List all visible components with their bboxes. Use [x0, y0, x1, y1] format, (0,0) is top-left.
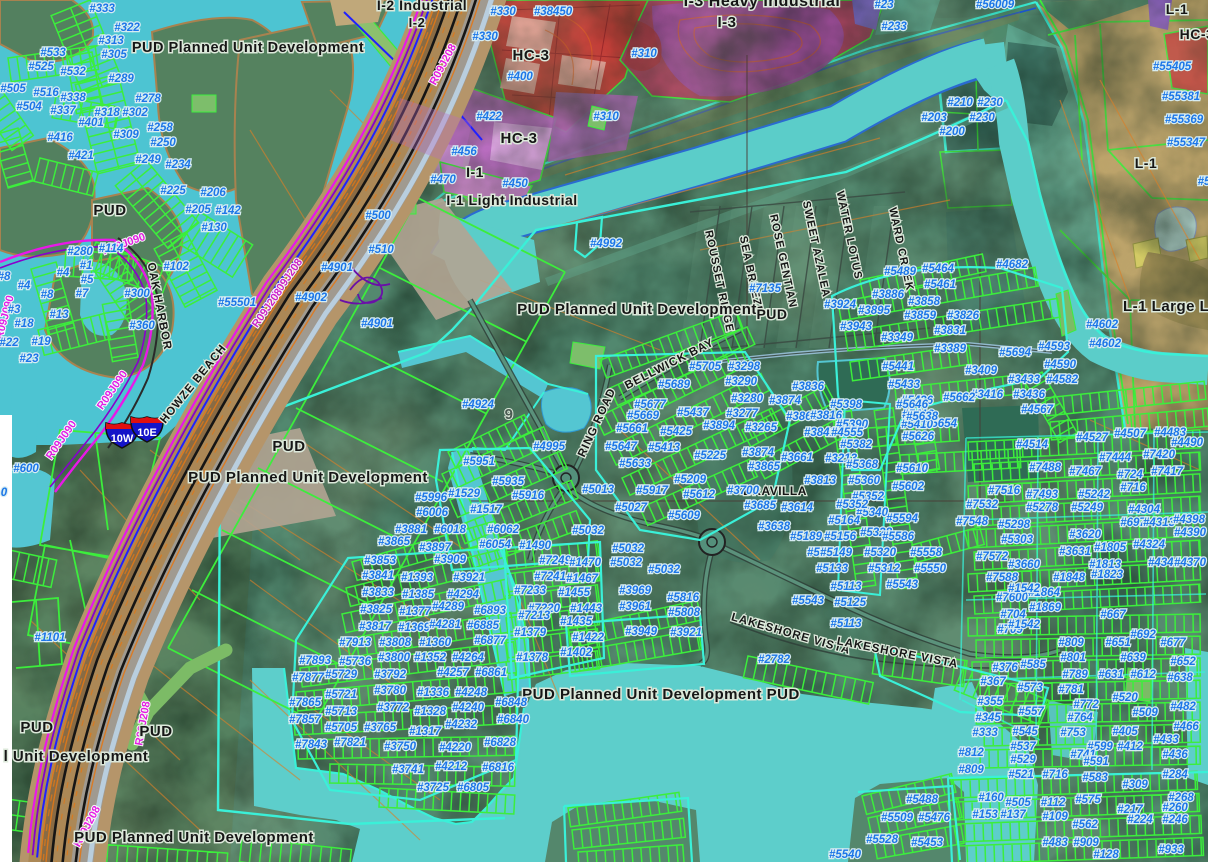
svg-text:#5633: #5633 [619, 458, 652, 470]
svg-text:PUD Planned Unit Development: PUD Planned Unit Development [74, 829, 314, 846]
svg-text:#5453: #5453 [911, 837, 944, 849]
svg-text:#309: #309 [113, 129, 139, 141]
svg-text:#509: #509 [1132, 707, 1158, 719]
svg-text:#3836: #3836 [792, 381, 825, 393]
svg-text:#112: #112 [1041, 797, 1066, 809]
svg-text:#5113: #5113 [830, 618, 862, 630]
svg-text:#631: #631 [1098, 669, 1124, 681]
svg-text:10W: 10W [111, 433, 134, 445]
svg-text:#3685: #3685 [744, 500, 777, 512]
svg-text:#7893: #7893 [299, 655, 332, 667]
svg-text:#6816: #6816 [482, 762, 515, 774]
svg-text:#3277: #3277 [726, 408, 759, 420]
svg-text:#405: #405 [1112, 726, 1138, 738]
svg-text:#5808: #5808 [668, 607, 701, 619]
svg-text:#7913: #7913 [339, 637, 372, 649]
svg-text:#5558: #5558 [910, 547, 943, 559]
svg-text:#3825: #3825 [360, 604, 393, 616]
svg-text:I-3 Heavy Industrial: I-3 Heavy Industrial [684, 0, 841, 10]
svg-text:#206: #206 [200, 187, 226, 199]
svg-text:#5298: #5298 [998, 519, 1031, 531]
svg-text:#246: #246 [1162, 814, 1188, 826]
svg-text:#230: #230 [969, 112, 995, 124]
svg-text:#5543: #5543 [792, 595, 825, 607]
svg-text:#338: #338 [60, 92, 86, 104]
svg-text:#7516: #7516 [988, 485, 1021, 497]
svg-text:#3660: #3660 [1008, 559, 1041, 571]
svg-text:#5661: #5661 [616, 423, 648, 435]
svg-text:#5209: #5209 [674, 474, 707, 486]
svg-text:#360: #360 [129, 320, 155, 332]
svg-text:#4901: #4901 [361, 318, 393, 330]
svg-text:#532: #532 [60, 66, 86, 78]
svg-text:#651: #651 [1105, 637, 1131, 649]
svg-text:#764: #764 [1067, 712, 1093, 724]
svg-text:#5705: #5705 [325, 722, 358, 734]
svg-text:#225: #225 [160, 185, 186, 197]
svg-text:#909: #909 [1073, 837, 1099, 849]
svg-text:#5594: #5594 [886, 513, 919, 525]
svg-text:#6861: #6861 [475, 667, 507, 679]
svg-text:#38450: #38450 [534, 6, 573, 18]
svg-text:#4264: #4264 [452, 652, 485, 664]
svg-text:#1328: #1328 [414, 706, 447, 718]
svg-text:#5303: #5303 [1001, 534, 1034, 546]
svg-text:#5278: #5278 [1026, 502, 1059, 514]
svg-text:#4590: #4590 [1044, 359, 1077, 371]
svg-text:#5816: #5816 [667, 592, 700, 604]
svg-text:#638: #638 [1167, 672, 1193, 684]
svg-text:#3969: #3969 [619, 585, 652, 597]
svg-text:9: 9 [505, 406, 514, 423]
svg-text:#3661: #3661 [781, 452, 813, 464]
svg-text:#6848: #6848 [495, 697, 528, 709]
svg-text:#3813: #3813 [804, 475, 837, 487]
svg-text:#5713: #5713 [325, 706, 358, 718]
svg-text:#313: #313 [98, 35, 124, 47]
svg-text:#3725: #3725 [417, 782, 450, 794]
svg-text:#4390: #4390 [1174, 527, 1207, 539]
svg-text:#3750: #3750 [384, 741, 417, 753]
svg-text:#5113: #5113 [830, 581, 862, 593]
svg-text:#933: #933 [1158, 844, 1184, 856]
svg-text:#5382: #5382 [840, 439, 873, 451]
svg-text:#5032: #5032 [610, 557, 643, 569]
svg-text:#210: #210 [947, 97, 973, 109]
svg-text:#258: #258 [147, 122, 173, 134]
svg-text:PUD Planned Unit Development: PUD Planned Unit Development PUD [522, 686, 800, 703]
svg-text:#6893: #6893 [474, 605, 507, 617]
svg-text:#3943: #3943 [840, 321, 873, 333]
svg-text:#200: #200 [939, 126, 965, 138]
svg-text:#1379: #1379 [514, 627, 547, 639]
svg-text:#6877: #6877 [474, 635, 507, 647]
svg-text:#436: #436 [1162, 749, 1188, 761]
svg-text:#5032: #5032 [572, 525, 605, 537]
svg-text:#284: #284 [1162, 769, 1188, 781]
svg-text:#3800: #3800 [378, 652, 411, 664]
svg-text:#575: #575 [1075, 794, 1101, 806]
svg-text:#6805: #6805 [457, 782, 490, 794]
svg-text:#4248: #4248 [455, 687, 488, 699]
svg-text:#3792: #3792 [374, 669, 407, 681]
svg-text:#450: #450 [502, 178, 528, 190]
svg-text:#4582: #4582 [1046, 374, 1079, 386]
svg-text:I-2 Industrial: I-2 Industrial [377, 0, 467, 13]
svg-text:#3961: #3961 [619, 601, 651, 613]
svg-text:#3265: #3265 [745, 422, 778, 434]
svg-text:#1869: #1869 [1029, 602, 1062, 614]
svg-text:#3833: #3833 [362, 587, 395, 599]
svg-text:#5425: #5425 [660, 426, 693, 438]
svg-text:#5413: #5413 [648, 442, 681, 454]
svg-text:#7213: #7213 [518, 610, 551, 622]
svg-text:#612: #612 [1130, 669, 1156, 681]
svg-text:#249: #249 [135, 154, 161, 166]
svg-text:#55501: #55501 [218, 297, 256, 309]
svg-text:#3859: #3859 [904, 310, 937, 322]
svg-text:#585: #585 [1020, 659, 1046, 671]
svg-text:#345: #345 [975, 712, 1001, 724]
svg-text:#3614: #3614 [781, 502, 814, 514]
svg-text:#5225: #5225 [694, 450, 727, 462]
svg-text:#5149: #5149 [820, 547, 853, 559]
svg-text:#6840: #6840 [497, 714, 530, 726]
svg-text:#801: #801 [1060, 652, 1086, 664]
svg-text:#4490: #4490 [1171, 437, 1204, 449]
svg-text:PUD: PUD [20, 719, 53, 736]
svg-text:#677: #677 [1160, 637, 1186, 649]
svg-text:HC-3: HC-3 [512, 47, 549, 64]
svg-text:#3865: #3865 [748, 461, 781, 473]
svg-text:#330: #330 [490, 6, 516, 18]
svg-text:#330: #330 [472, 31, 498, 43]
svg-text:#1378: #1378 [516, 652, 549, 664]
svg-text:#4527: #4527 [1076, 432, 1109, 444]
svg-text:#5610: #5610 [896, 463, 929, 475]
svg-text:#456: #456 [451, 146, 477, 158]
svg-text:10E: 10E [137, 427, 157, 439]
svg-text:#422: #422 [476, 111, 502, 123]
svg-text:#3631: #3631 [1059, 546, 1091, 558]
svg-text:#5013: #5013 [582, 484, 615, 496]
svg-text:#230: #230 [977, 97, 1003, 109]
svg-text:#3700: #3700 [727, 485, 760, 497]
svg-text:#1529: #1529 [448, 488, 481, 500]
svg-text:#3638: #3638 [758, 521, 791, 533]
svg-text:#3921: #3921 [453, 572, 485, 584]
svg-text:#557: #557 [1018, 706, 1044, 718]
svg-text:PUD Planned Unit Development: PUD Planned Unit Development [188, 469, 428, 486]
svg-text:#789: #789 [1062, 669, 1088, 681]
svg-text:#203: #203 [921, 112, 947, 124]
svg-text:#4304: #4304 [1128, 504, 1161, 516]
svg-text:#5437: #5437 [677, 407, 710, 419]
svg-text:#5032: #5032 [612, 543, 645, 555]
svg-text:#3826: #3826 [947, 310, 980, 322]
svg-text:PUD: PUD [93, 202, 126, 219]
svg-text:#3817: #3817 [359, 621, 392, 633]
svg-text:#772: #772 [1073, 699, 1099, 711]
svg-text:#5249: #5249 [1071, 502, 1104, 514]
svg-text:#5242: #5242 [1078, 489, 1111, 501]
svg-text:I-2: I-2 [409, 15, 426, 30]
svg-text:#470: #470 [430, 174, 456, 186]
svg-text:#1402: #1402 [560, 647, 593, 659]
svg-text:#5662: #5662 [943, 392, 976, 404]
svg-text:#5736: #5736 [339, 656, 372, 668]
svg-text:#5626: #5626 [902, 431, 935, 443]
svg-text:#7821: #7821 [334, 737, 366, 749]
svg-text:#716: #716 [1042, 769, 1068, 781]
svg-text:#1848: #1848 [1053, 572, 1086, 584]
svg-text:#367: #367 [980, 676, 1006, 688]
svg-text:L-1 Large Lo: L-1 Large Lo [1123, 298, 1208, 315]
svg-text:#5609: #5609 [668, 510, 701, 522]
svg-text:#7: #7 [76, 288, 89, 300]
svg-text:#583: #583 [1082, 772, 1108, 784]
svg-text:#5476: #5476 [918, 812, 951, 824]
svg-text:#4901: #4901 [321, 262, 353, 274]
svg-text:#102: #102 [163, 261, 189, 273]
svg-text:#521: #521 [1008, 769, 1034, 781]
svg-text:#19: #19 [31, 336, 51, 348]
svg-text:#652: #652 [1170, 656, 1196, 668]
svg-text:#5398: #5398 [830, 399, 863, 411]
svg-text:#5: #5 [81, 274, 94, 286]
svg-text:#5352: #5352 [836, 499, 869, 511]
svg-text:#4370: #4370 [1174, 557, 1207, 569]
svg-text:#310: #310 [631, 48, 657, 60]
svg-text:#3853: #3853 [364, 555, 397, 567]
svg-text:#5729: #5729 [325, 669, 358, 681]
svg-text:#1360: #1360 [419, 637, 452, 649]
svg-text:#4555: #4555 [831, 427, 864, 439]
svg-text:#2782: #2782 [758, 654, 791, 666]
svg-text:#5647: #5647 [605, 441, 638, 453]
svg-text:L-1: L-1 [1166, 1, 1189, 17]
svg-text:#573: #573 [1017, 682, 1043, 694]
svg-text:#3909: #3909 [434, 554, 467, 566]
svg-text:#4602: #4602 [1089, 338, 1122, 350]
svg-text:PUD: PUD [139, 723, 172, 740]
svg-text:#7572: #7572 [976, 551, 1009, 563]
svg-text:#1: #1 [80, 260, 93, 272]
svg-text:#7865: #7865 [289, 697, 322, 709]
svg-text:#3808: #3808 [379, 637, 412, 649]
svg-text:#5638: #5638 [906, 411, 939, 423]
svg-text:#525: #525 [28, 61, 54, 73]
svg-text:#224: #224 [1127, 814, 1153, 826]
svg-text:I-1 Light Industrial: I-1 Light Industrial [446, 192, 577, 208]
svg-text:#302: #302 [122, 107, 148, 119]
svg-text:#7241: #7241 [534, 571, 566, 583]
svg-text:#56009: #56009 [976, 0, 1015, 11]
svg-text:#3389: #3389 [934, 343, 967, 355]
svg-text:#1455: #1455 [558, 587, 591, 599]
svg-text:#510: #510 [368, 244, 394, 256]
svg-text:#412: #412 [1117, 741, 1143, 753]
svg-text:#7249: #7249 [539, 555, 572, 567]
svg-text:#400: #400 [507, 71, 533, 83]
svg-text:#55405: #55405 [1153, 61, 1192, 73]
svg-text:#5721: #5721 [325, 689, 357, 701]
svg-text:#516: #516 [33, 87, 59, 99]
svg-text:#5689: #5689 [658, 379, 691, 391]
svg-text:#4220: #4220 [439, 742, 472, 754]
svg-text:#6018: #6018 [434, 524, 467, 536]
svg-text:#280: #280 [67, 246, 93, 258]
svg-text:#3897: #3897 [419, 542, 452, 554]
svg-text:#692: #692 [1130, 629, 1156, 641]
svg-text:#260: #260 [1162, 802, 1188, 814]
svg-text:#1517: #1517 [470, 504, 503, 516]
svg-text:#4995: #4995 [533, 441, 566, 453]
svg-text:I-3: I-3 [717, 14, 736, 31]
svg-text:#3: #3 [8, 304, 21, 316]
svg-text:#4289: #4289 [432, 601, 465, 613]
svg-text:#4682: #4682 [996, 259, 1029, 271]
svg-text:#533: #533 [40, 47, 66, 59]
svg-text:#137: #137 [1000, 809, 1026, 821]
svg-text:#5586: #5586 [882, 531, 915, 543]
svg-text:#466: #466 [1173, 721, 1199, 733]
svg-text:#355: #355 [977, 696, 1003, 708]
svg-text:#3831: #3831 [934, 325, 966, 337]
svg-text:#483: #483 [1042, 837, 1068, 849]
svg-text:#5602: #5602 [892, 481, 925, 493]
svg-text:#233: #233 [881, 21, 907, 33]
svg-text:#781: #781 [1058, 684, 1084, 696]
svg-text:#376: #376 [992, 662, 1018, 674]
svg-text:#809: #809 [958, 764, 984, 776]
svg-text:#5461: #5461 [924, 279, 956, 291]
svg-text:#500: #500 [365, 210, 391, 222]
svg-text:#5646: #5646 [896, 399, 929, 411]
svg-text:#4: #4 [18, 280, 31, 292]
svg-text:#278: #278 [135, 93, 161, 105]
svg-text:#128: #128 [1093, 849, 1119, 861]
svg-text:#8: #8 [41, 289, 54, 301]
svg-text:#7532: #7532 [966, 499, 999, 511]
svg-text:#4398: #4398 [1173, 514, 1206, 526]
svg-text:#520: #520 [1112, 692, 1138, 704]
svg-text:#3780: #3780 [374, 685, 407, 697]
svg-text:#5509: #5509 [881, 812, 914, 824]
svg-text:#3620: #3620 [1069, 529, 1102, 541]
svg-text:#421: #421 [68, 150, 94, 162]
svg-text:#3921: #3921 [670, 627, 702, 639]
svg-text:#1336: #1336 [417, 687, 450, 699]
svg-text:#4232: #4232 [445, 719, 478, 731]
svg-text:#3841: #3841 [362, 570, 394, 582]
svg-text:#4602: #4602 [1086, 319, 1119, 331]
svg-text:#5464: #5464 [922, 263, 955, 275]
svg-text:#4281: #4281 [429, 619, 461, 631]
svg-text:#1823: #1823 [1091, 569, 1124, 581]
svg-text:#1393: #1393 [401, 572, 434, 584]
svg-text:#4313: #4313 [1143, 517, 1176, 529]
svg-text:#3865: #3865 [378, 536, 411, 548]
svg-text:#309: #309 [1122, 779, 1148, 791]
svg-text:#1490: #1490 [519, 540, 552, 552]
svg-text:l Unit Development: l Unit Development [4, 748, 149, 765]
svg-text:#7548: #7548 [956, 516, 989, 528]
svg-text:PUD: PUD [756, 306, 787, 322]
svg-text:#3436: #3436 [1013, 389, 1046, 401]
svg-text:#7877: #7877 [292, 672, 325, 684]
svg-text:#114: #114 [99, 243, 124, 255]
svg-text:#3949: #3949 [625, 626, 658, 638]
svg-text:#4507: #4507 [1114, 428, 1147, 440]
svg-text:#5433: #5433 [888, 379, 921, 391]
svg-text:#3298: #3298 [728, 361, 761, 373]
svg-text:#1422: #1422 [572, 632, 605, 644]
svg-text:PUD Planned Unit Development: PUD Planned Unit Development [517, 301, 757, 318]
svg-text:#562: #562 [1072, 819, 1098, 831]
svg-text:#3881: #3881 [395, 524, 427, 536]
svg-text:#6054: #6054 [479, 539, 512, 551]
svg-text:#6828: #6828 [484, 737, 517, 749]
svg-text:#153: #153 [972, 809, 998, 821]
svg-text:#3409: #3409 [965, 365, 998, 377]
svg-text:#310: #310 [593, 111, 619, 123]
svg-text:#5951: #5951 [463, 456, 495, 468]
svg-text:#13: #13 [49, 309, 69, 321]
svg-text:PUD Planned Unit Development: PUD Planned Unit Development [132, 40, 364, 56]
svg-text:#4567: #4567 [1021, 404, 1054, 416]
svg-text:L-1: L-1 [1135, 155, 1158, 171]
svg-text:#1101: #1101 [34, 632, 65, 644]
svg-text:#4: #4 [57, 267, 70, 279]
svg-text:#504: #504 [16, 101, 42, 113]
svg-text:#55347: #55347 [1167, 137, 1206, 149]
svg-text:#5360: #5360 [848, 475, 881, 487]
svg-text:PUD: PUD [272, 438, 305, 455]
svg-text:#3433: #3433 [1008, 374, 1041, 386]
svg-text:#416: #416 [47, 132, 73, 144]
svg-text:#3765: #3765 [364, 722, 397, 734]
svg-text:#505: #505 [1005, 797, 1031, 809]
svg-text:#4992: #4992 [590, 238, 623, 250]
svg-text:#305: #305 [101, 49, 127, 61]
svg-text:#5550: #5550 [914, 563, 947, 575]
svg-text:#716: #716 [1120, 482, 1146, 494]
svg-text:#809: #809 [1058, 637, 1084, 649]
svg-text:#3772: #3772 [377, 702, 410, 714]
svg-text:#4924: #4924 [462, 399, 495, 411]
svg-text:#5320: #5320 [864, 547, 897, 559]
svg-text:#130: #130 [201, 222, 227, 234]
svg-text:#1435: #1435 [560, 616, 593, 628]
svg-text:#333: #333 [89, 3, 115, 15]
svg-text:0: 0 [1, 487, 8, 499]
svg-text:#5540: #5540 [829, 849, 862, 861]
svg-text:#6885: #6885 [467, 620, 500, 632]
svg-text:#6006: #6006 [416, 507, 449, 519]
svg-text:#250: #250 [150, 137, 176, 149]
svg-text:#5164: #5164 [828, 515, 861, 527]
svg-text:#1317: #1317 [409, 726, 442, 738]
svg-text:#5156: #5156 [824, 531, 857, 543]
svg-text:#5489: #5489 [884, 266, 917, 278]
svg-text:#8: #8 [0, 271, 11, 283]
svg-text:#7444: #7444 [1099, 452, 1132, 464]
svg-text:#1470: #1470 [569, 557, 602, 569]
svg-text:#4324: #4324 [1133, 539, 1166, 551]
svg-text:#109: #109 [1042, 811, 1068, 823]
svg-text:#7493: #7493 [1026, 489, 1059, 501]
